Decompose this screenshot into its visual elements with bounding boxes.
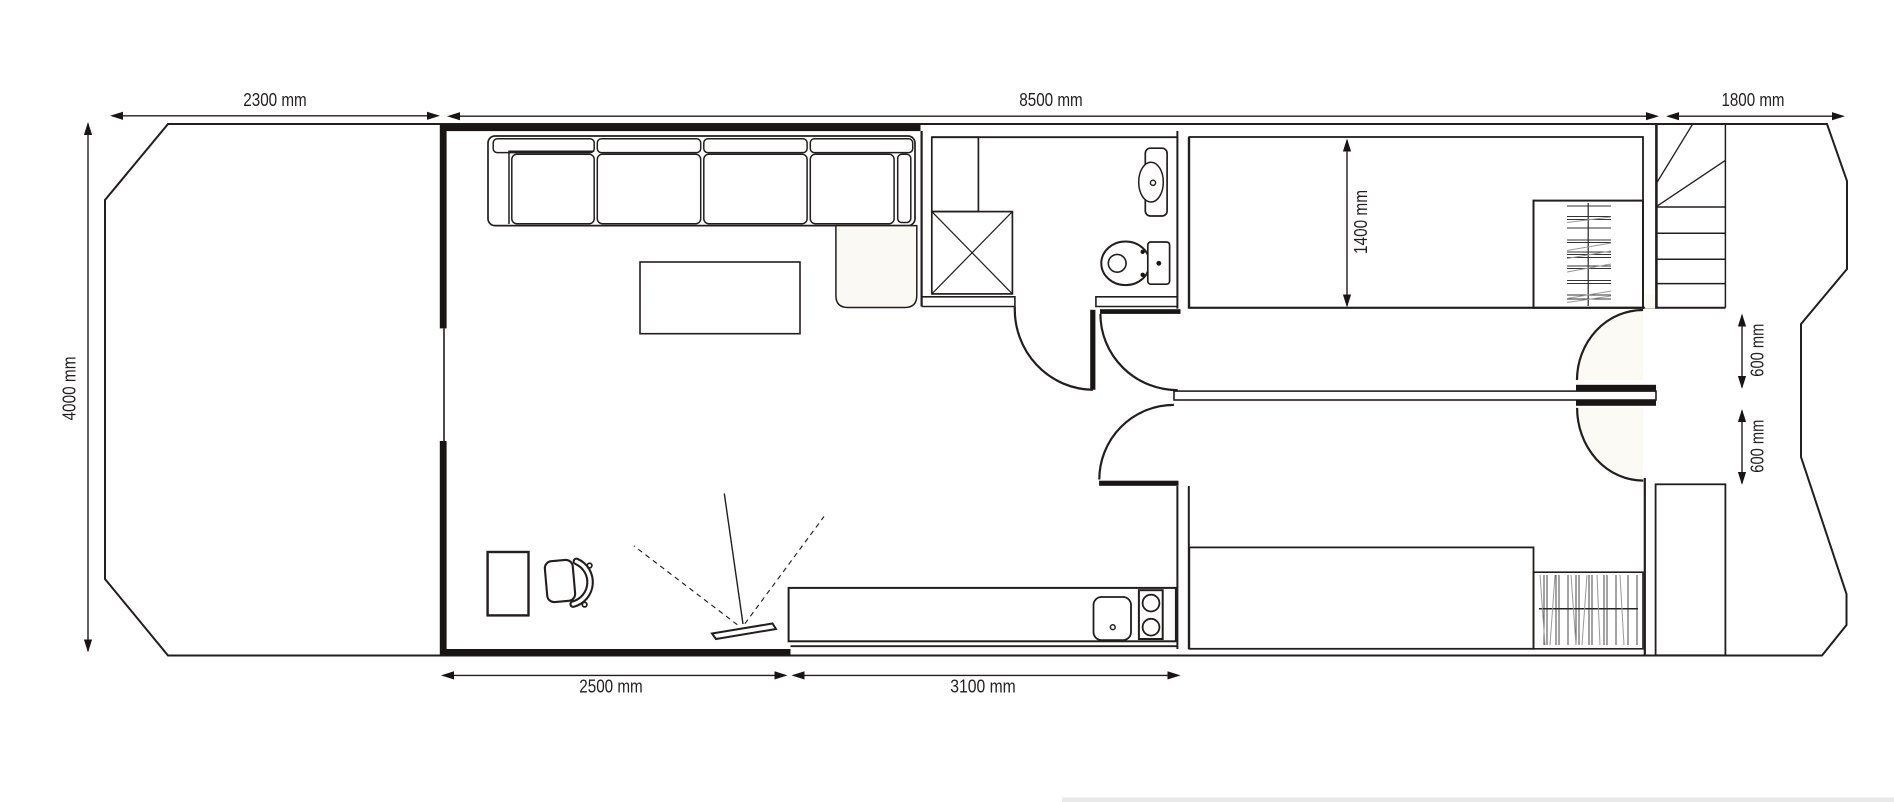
svg-text:600 mm: 600 mm [1747, 324, 1767, 377]
svg-text:8500 mm: 8500 mm [1019, 90, 1083, 110]
svg-text:1800 mm: 1800 mm [1722, 90, 1785, 110]
svg-text:4000 mm: 4000 mm [59, 357, 79, 421]
svg-text:2500 mm: 2500 mm [579, 677, 643, 697]
svg-text:1400 mm: 1400 mm [1351, 190, 1371, 254]
svg-text:3100 mm: 3100 mm [950, 677, 1016, 697]
svg-text:600 mm: 600 mm [1748, 420, 1768, 473]
svg-text:2300 mm: 2300 mm [243, 90, 307, 110]
